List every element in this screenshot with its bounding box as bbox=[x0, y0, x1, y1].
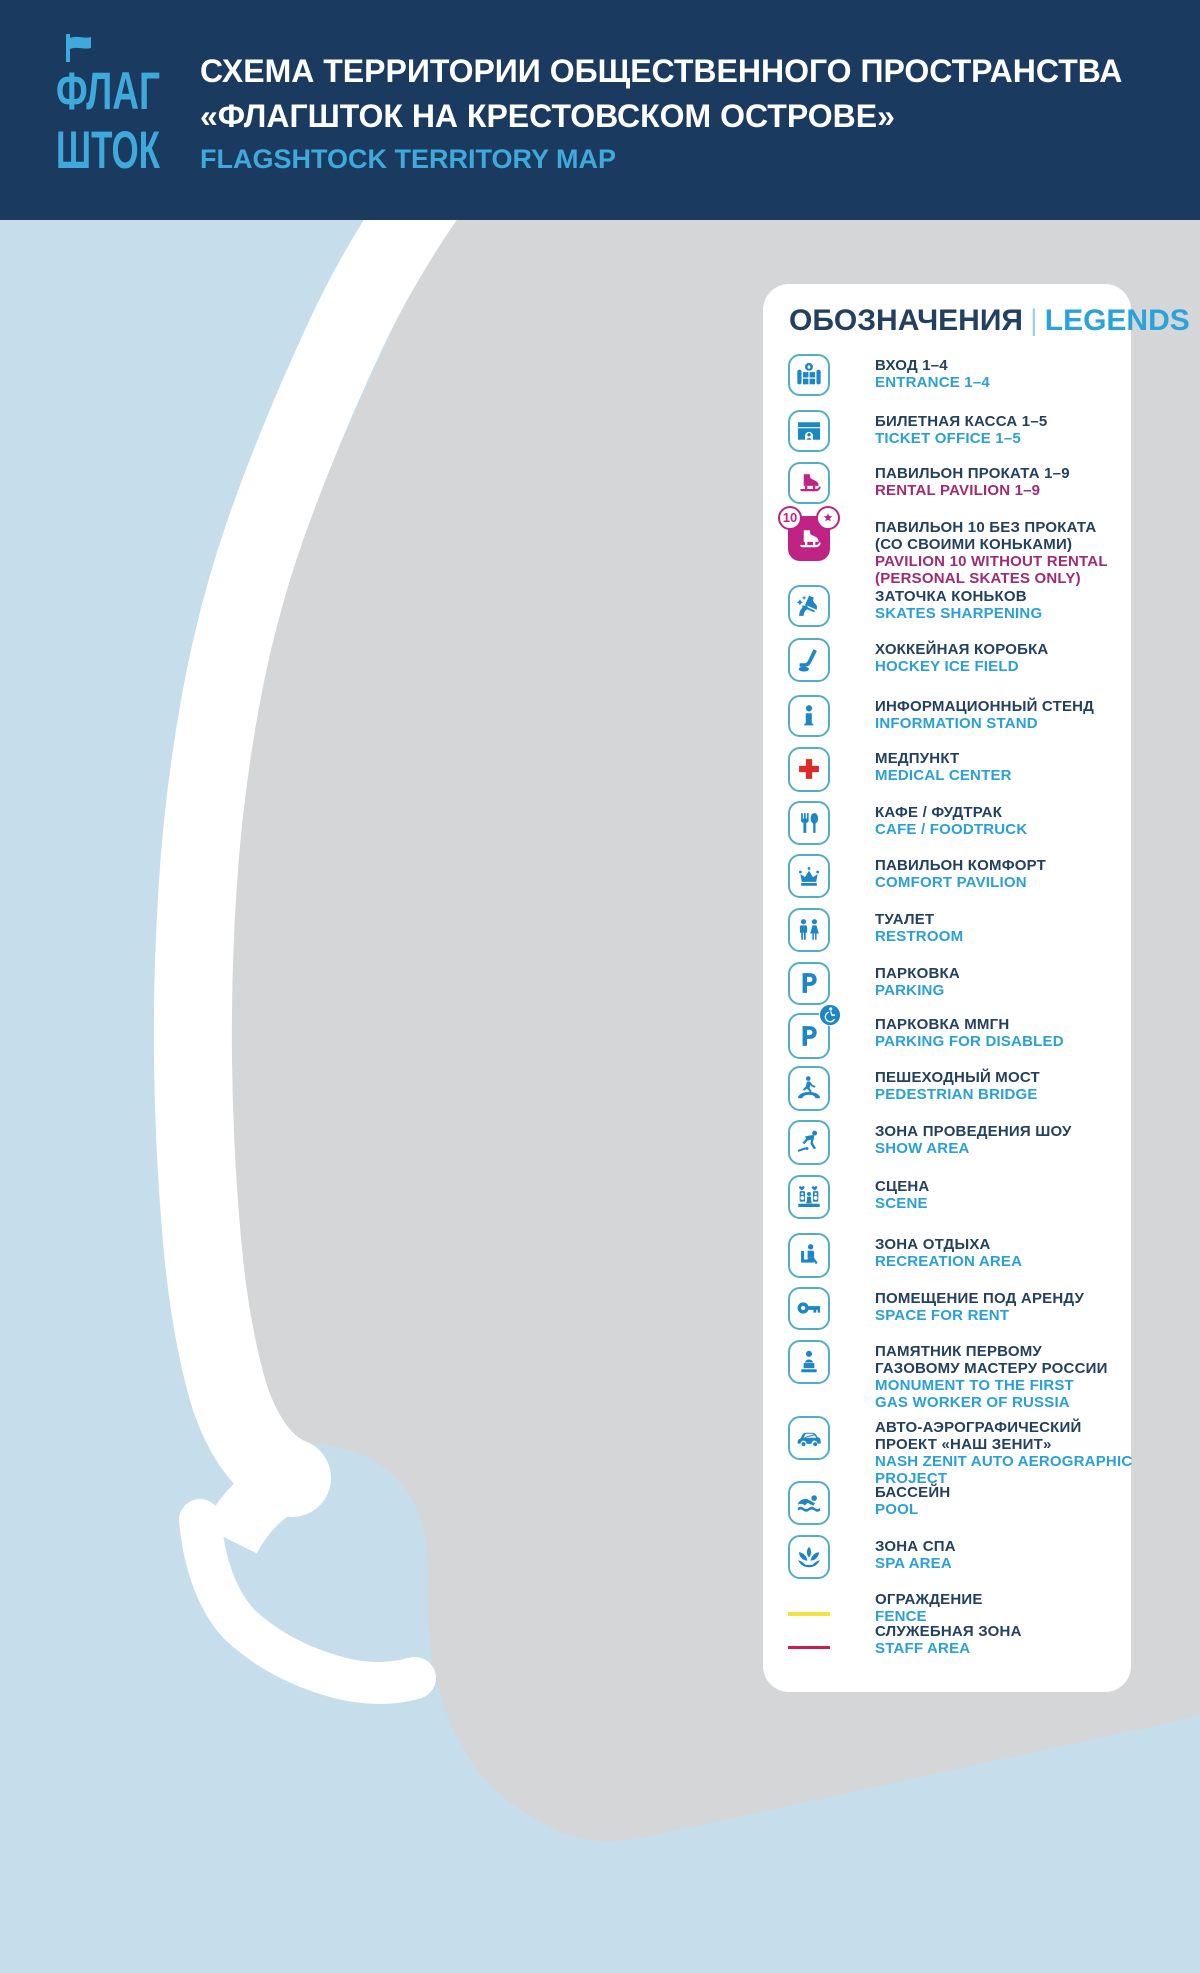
svg-text:ШТОК: ШТОК bbox=[56, 120, 161, 180]
svg-text:ФЛАГ: ФЛАГ bbox=[56, 61, 160, 121]
